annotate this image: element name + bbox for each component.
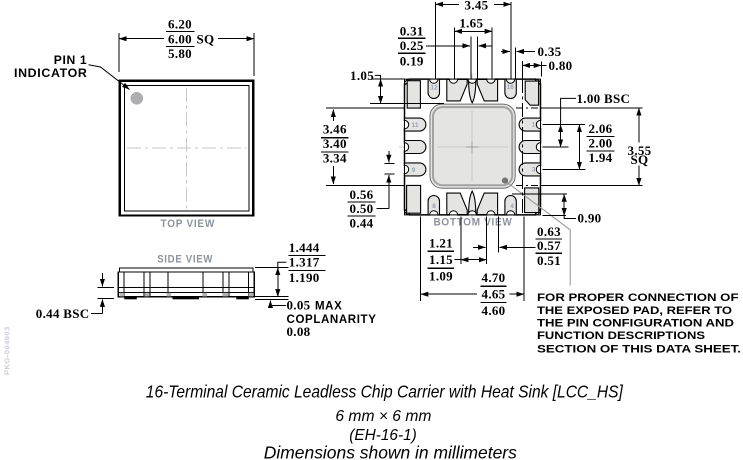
svg-text:SIDE VIEW: SIDE VIEW [157,254,213,266]
svg-text:PKG-004903: PKG-004903 [3,326,12,375]
svg-text:0.44 BSC: 0.44 BSC [36,306,90,321]
svg-text:1.00 BSC: 1.00 BSC [577,91,631,106]
svg-text:4.60: 4.60 [482,303,506,318]
svg-text:0.19: 0.19 [400,54,424,69]
svg-text:THE PIN CONFIGURATION AND: THE PIN CONFIGURATION AND [537,318,734,330]
svg-text:3: 3 [532,167,536,174]
svg-text:1.65: 1.65 [459,16,483,31]
svg-text:0.25: 0.25 [400,38,424,53]
svg-text:FUNCTION DESCRIPTIONS: FUNCTION DESCRIPTIONS [537,330,705,342]
svg-text:2.00: 2.00 [589,136,613,151]
svg-text:9: 9 [412,167,416,174]
svg-text:0.56: 0.56 [350,187,374,202]
svg-text:0.44: 0.44 [350,216,374,231]
svg-text:2.06: 2.06 [589,121,613,136]
svg-text:TOP VIEW: TOP VIEW [161,218,216,230]
svg-text:11: 11 [412,122,419,129]
svg-text:1.09: 1.09 [429,269,453,284]
svg-text:0.05 MAX: 0.05 MAX [287,298,343,313]
svg-text:INDICATOR: INDICATOR [14,68,88,80]
svg-text:1.05: 1.05 [350,68,374,83]
svg-text:1.190: 1.190 [289,270,320,285]
svg-text:BOTTOM VIEW: BOTTOM VIEW [434,216,513,228]
svg-text:0.57: 0.57 [537,238,561,253]
svg-text:THE EXPOSED PAD, REFER TO: THE EXPOSED PAD, REFER TO [537,305,733,317]
svg-text:Dimensions shown in millimeter: Dimensions shown in millimeters [264,442,517,460]
svg-text:0.90: 0.90 [578,210,602,225]
svg-text:0.35: 0.35 [538,44,562,59]
svg-text:16: 16 [507,84,515,91]
svg-text:0.80: 0.80 [549,58,573,73]
svg-text:0.08: 0.08 [287,324,311,339]
svg-text:6.00: 6.00 [168,31,192,46]
svg-text:1.317: 1.317 [289,255,320,270]
svg-text:8: 8 [432,203,436,210]
svg-text:12: 12 [430,85,438,92]
svg-text:6 mm × 6 mm: 6 mm × 6 mm [335,408,431,425]
svg-text:3.34: 3.34 [323,151,347,166]
svg-text:FOR PROPER CONNECTION OF: FOR PROPER CONNECTION OF [537,292,739,304]
svg-text:16-Terminal Ceramic Leadless C: 16-Terminal Ceramic Leadless Chip Carrie… [146,381,624,401]
svg-text:1.15: 1.15 [429,252,453,267]
svg-text:3.40: 3.40 [323,136,347,151]
svg-text:SQ: SQ [631,152,649,167]
svg-text:1: 1 [532,122,536,129]
svg-text:4.70: 4.70 [482,270,506,285]
svg-text:0.63: 0.63 [537,224,561,239]
svg-text:3.46: 3.46 [323,122,347,137]
svg-text:0.50: 0.50 [350,201,374,216]
svg-text:1.444: 1.444 [289,240,320,255]
svg-text:0.51: 0.51 [537,253,561,268]
svg-text:0.31: 0.31 [400,23,424,38]
svg-text:PIN 1: PIN 1 [54,55,88,67]
svg-text:1.21: 1.21 [429,235,453,250]
svg-text:5.80: 5.80 [168,46,192,61]
svg-text:3.45: 3.45 [465,0,489,12]
svg-text:1.94: 1.94 [589,150,613,165]
svg-text:4: 4 [510,203,514,210]
svg-text:SQ: SQ [197,31,215,46]
svg-text:4.65: 4.65 [482,287,506,302]
svg-text:SECTION OF THIS DATA SHEET.: SECTION OF THIS DATA SHEET. [537,344,741,356]
svg-text:6.20: 6.20 [168,16,192,31]
